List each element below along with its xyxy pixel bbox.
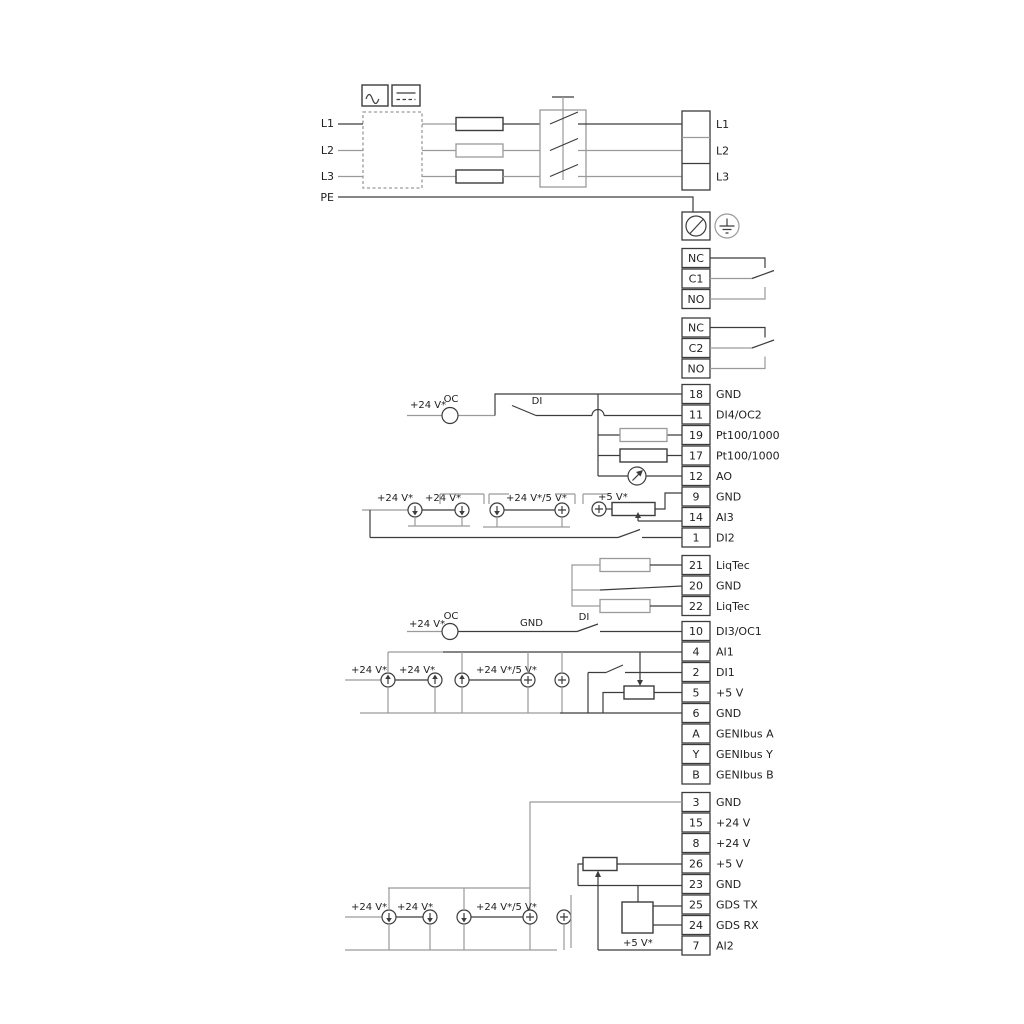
plus24-label: +24 V* [377, 493, 413, 504]
di2-switch-blade [618, 530, 640, 538]
terminal-label: Pt100/1000 [716, 429, 780, 442]
terminal-label: GENIbus Y [716, 748, 773, 761]
wire-l2-l3-in [338, 151, 363, 177]
dc-symbol-box [392, 85, 420, 106]
relay2-no-label: NO [688, 363, 705, 376]
wiper-arrow-up [595, 871, 601, 878]
plus-glyph [524, 676, 532, 684]
gnd-label: GND [520, 618, 543, 629]
relay1-nc-label: NC [688, 252, 704, 265]
di1-switch-blade [606, 665, 623, 673]
terminal-number: 8 [693, 837, 700, 850]
terminal-label: +24 V [716, 837, 751, 850]
terminal-number: 17 [689, 450, 703, 463]
terminal-number: 24 [689, 919, 703, 932]
wire-pot-left [603, 693, 624, 714]
wiring-diagram: L1 L2 L3 PE L1 L2 L3 [0, 0, 1024, 1024]
relay2-nc-wire [710, 328, 765, 338]
relay2-contact-blade [752, 340, 774, 348]
terminal-group-io-bottom: 3 GND 15 +24 V 8 +24 V 26 +5 V 23 GND 25… [345, 793, 759, 956]
power-input-label-l3: L3 [321, 170, 334, 183]
di-label: DI [532, 396, 543, 407]
wire-di2 [370, 510, 618, 538]
terminal-label: GND [716, 878, 741, 891]
terminal-label: GND [716, 796, 741, 809]
terminal-number: 11 [689, 409, 703, 422]
terminal-label: LiqTec [716, 559, 750, 572]
oc-source-icon [442, 624, 458, 640]
terminal-number: 22 [689, 600, 703, 613]
liqtec-group: 21 LiqTec 20 GND 22 LiqTec [572, 556, 750, 616]
fuse-symbol-l3 [456, 170, 503, 183]
plus24-label: +24 V* [397, 902, 433, 913]
arrow-head-down [461, 918, 467, 923]
terminal-label: GENIbus B [716, 769, 774, 782]
oc-source-icon [442, 408, 458, 424]
power-terminal-block [682, 111, 710, 190]
plus24or5-label: +24 V*/5 V* [506, 493, 567, 504]
power-output-label-l3: L3 [716, 171, 729, 184]
arrow-head-down [386, 918, 392, 923]
option-verticals [388, 888, 571, 950]
plus24-label: +24 V* [351, 665, 387, 676]
wiper-arrow-down [637, 680, 643, 686]
oc-label: OC [444, 611, 459, 622]
plus-glyph [558, 676, 566, 684]
wire-gnd3-loop [530, 802, 682, 950]
terminal-label: Pt100/1000 [716, 450, 780, 463]
relay2-nc-label: NC [688, 322, 704, 335]
power-section: L1 L2 L3 PE L1 L2 L3 [320, 85, 729, 204]
relay1-block: NC C1 NO [682, 249, 774, 309]
terminal-number: Y [692, 748, 700, 761]
relay2-c2-label: C2 [689, 342, 704, 355]
plus24or5-label: +24 V*/5 V* [476, 902, 537, 913]
plus24-label: +24 V* [399, 665, 435, 676]
liqtec-resistor-symbol [600, 559, 650, 572]
plus-glyph [526, 913, 534, 921]
wire-liqtec-loop-bottom [572, 590, 600, 606]
power-input-label-l1: L1 [321, 117, 334, 130]
di-box-outline [495, 394, 598, 416]
wire-liqtec-to-gnd20 [600, 586, 682, 590]
filter-dashed-box [363, 112, 422, 188]
terminal-number: 5 [693, 687, 700, 700]
relay1-contact-blade [752, 271, 774, 279]
terminal-label: +5 V [716, 858, 744, 871]
potentiometer-symbol [583, 858, 617, 871]
terminal-label: DI2 [716, 532, 735, 545]
di3-switch-blade [577, 624, 598, 632]
relay2-no-wire [710, 357, 765, 369]
resistor-symbol-pt100-19 [620, 429, 667, 442]
relay2-block: NC C2 NO [682, 318, 774, 378]
liqtec-resistor-symbol [600, 600, 650, 613]
plus-glyph [558, 506, 566, 514]
terminal-number: 1 [693, 532, 700, 545]
potentiometer-symbol [624, 686, 654, 699]
arrow-head-down [412, 511, 418, 516]
terminal-label: GND [716, 388, 741, 401]
terminal-number: 9 [693, 491, 700, 504]
fuse-symbol-l2 [456, 144, 503, 157]
earth-glyph [720, 219, 735, 234]
terminal-number: 18 [689, 388, 703, 401]
terminal-number: 21 [689, 559, 703, 572]
arrow-head-down [427, 918, 433, 923]
terminal-label: AO [716, 470, 732, 483]
terminal-label: GDS RX [716, 919, 759, 932]
potentiometer-symbol [612, 503, 655, 516]
wire-pot-left [578, 864, 583, 886]
plus24-label: +24 V* [425, 493, 461, 504]
terminal-label: DI4/OC2 [716, 409, 762, 422]
power-output-label-l1: L1 [716, 118, 729, 131]
terminal-number: 25 [689, 899, 703, 912]
wire-switch-to-block-l2-l3 [578, 151, 682, 177]
terminal-number: 15 [689, 817, 703, 830]
wire-pot-to-gnd9 [655, 493, 682, 509]
resistor-symbol-pt100-17 [620, 449, 667, 462]
fuse-symbol-l1 [456, 118, 503, 131]
terminal-label: DI3/OC1 [716, 625, 762, 638]
di-switch-blade [512, 406, 536, 416]
terminal-number: 3 [693, 796, 700, 809]
terminal-number: 23 [689, 878, 703, 891]
power-output-label-l2: L2 [716, 145, 729, 158]
relay1-nc-wire [710, 258, 765, 268]
terminal-number: 26 [689, 858, 703, 871]
terminal-label: GENIbus A [716, 728, 774, 741]
terminal-number: 10 [689, 625, 703, 638]
wire-pe [338, 197, 693, 212]
gds-sensor-box [622, 902, 653, 933]
terminal-number: A [692, 728, 700, 741]
terminal-label: GND [716, 580, 741, 593]
power-input-label-pe: PE [320, 191, 334, 204]
terminal-number: 2 [693, 666, 700, 679]
terminal-number: 19 [689, 429, 703, 442]
terminal-label: GND [716, 491, 741, 504]
terminal-number: 14 [689, 511, 703, 524]
di-label: DI [579, 612, 590, 623]
power-input-label-l2: L2 [321, 144, 334, 157]
terminal-group-io-mid: 10 DI3/OC1 4 AI1 2 DI1 5 +5 V 6 GND A GE… [345, 611, 774, 784]
option-verticals [388, 652, 562, 713]
plus24-label: +24 V* [351, 902, 387, 913]
wire-liqtec-loop-top [572, 565, 600, 590]
plus24-label: +24 V* [409, 619, 445, 630]
plus-glyph [560, 913, 568, 921]
relay1-no-label: NO [688, 293, 705, 306]
relay1-no-wire [710, 287, 765, 299]
arrow-head-down [494, 511, 500, 516]
arrow-head-down [459, 511, 465, 516]
terminal-label: GDS TX [716, 899, 758, 912]
relay1-c1-label: C1 [689, 273, 704, 286]
plus-glyph [595, 505, 603, 513]
wiring-diagram-page: L1 L2 L3 PE L1 L2 L3 [0, 0, 1024, 1024]
terminal-label: +5 V [716, 687, 744, 700]
wire-filter-to-fuses [422, 124, 456, 177]
terminal-label: +24 V [716, 817, 751, 830]
terminal-number: 7 [693, 940, 700, 953]
option-brackets-bottom [408, 517, 570, 527]
pe-ground-section [338, 197, 739, 240]
terminal-number: B [692, 769, 700, 782]
terminal-label: AI2 [716, 940, 734, 953]
terminal-label: AI1 [716, 646, 734, 659]
arrow-head-up [459, 675, 465, 680]
terminal-number: 20 [689, 580, 703, 593]
plus24-label: +24 V* [410, 400, 446, 411]
terminal-group-io-top: 18 GND 11 DI4/OC2 19 Pt100/1000 17 Pt100… [362, 385, 780, 548]
terminal-label: DI1 [716, 666, 735, 679]
oc-label: OC [444, 394, 459, 405]
terminal-label: GND [716, 707, 741, 720]
terminal-number: 6 [693, 707, 700, 720]
plus5-label: +5 V* [623, 938, 653, 949]
terminal-number: 4 [693, 646, 700, 659]
terminal-label: LiqTec [716, 600, 750, 613]
terminal-number: 12 [689, 470, 703, 483]
terminal-label: AI3 [716, 511, 734, 524]
